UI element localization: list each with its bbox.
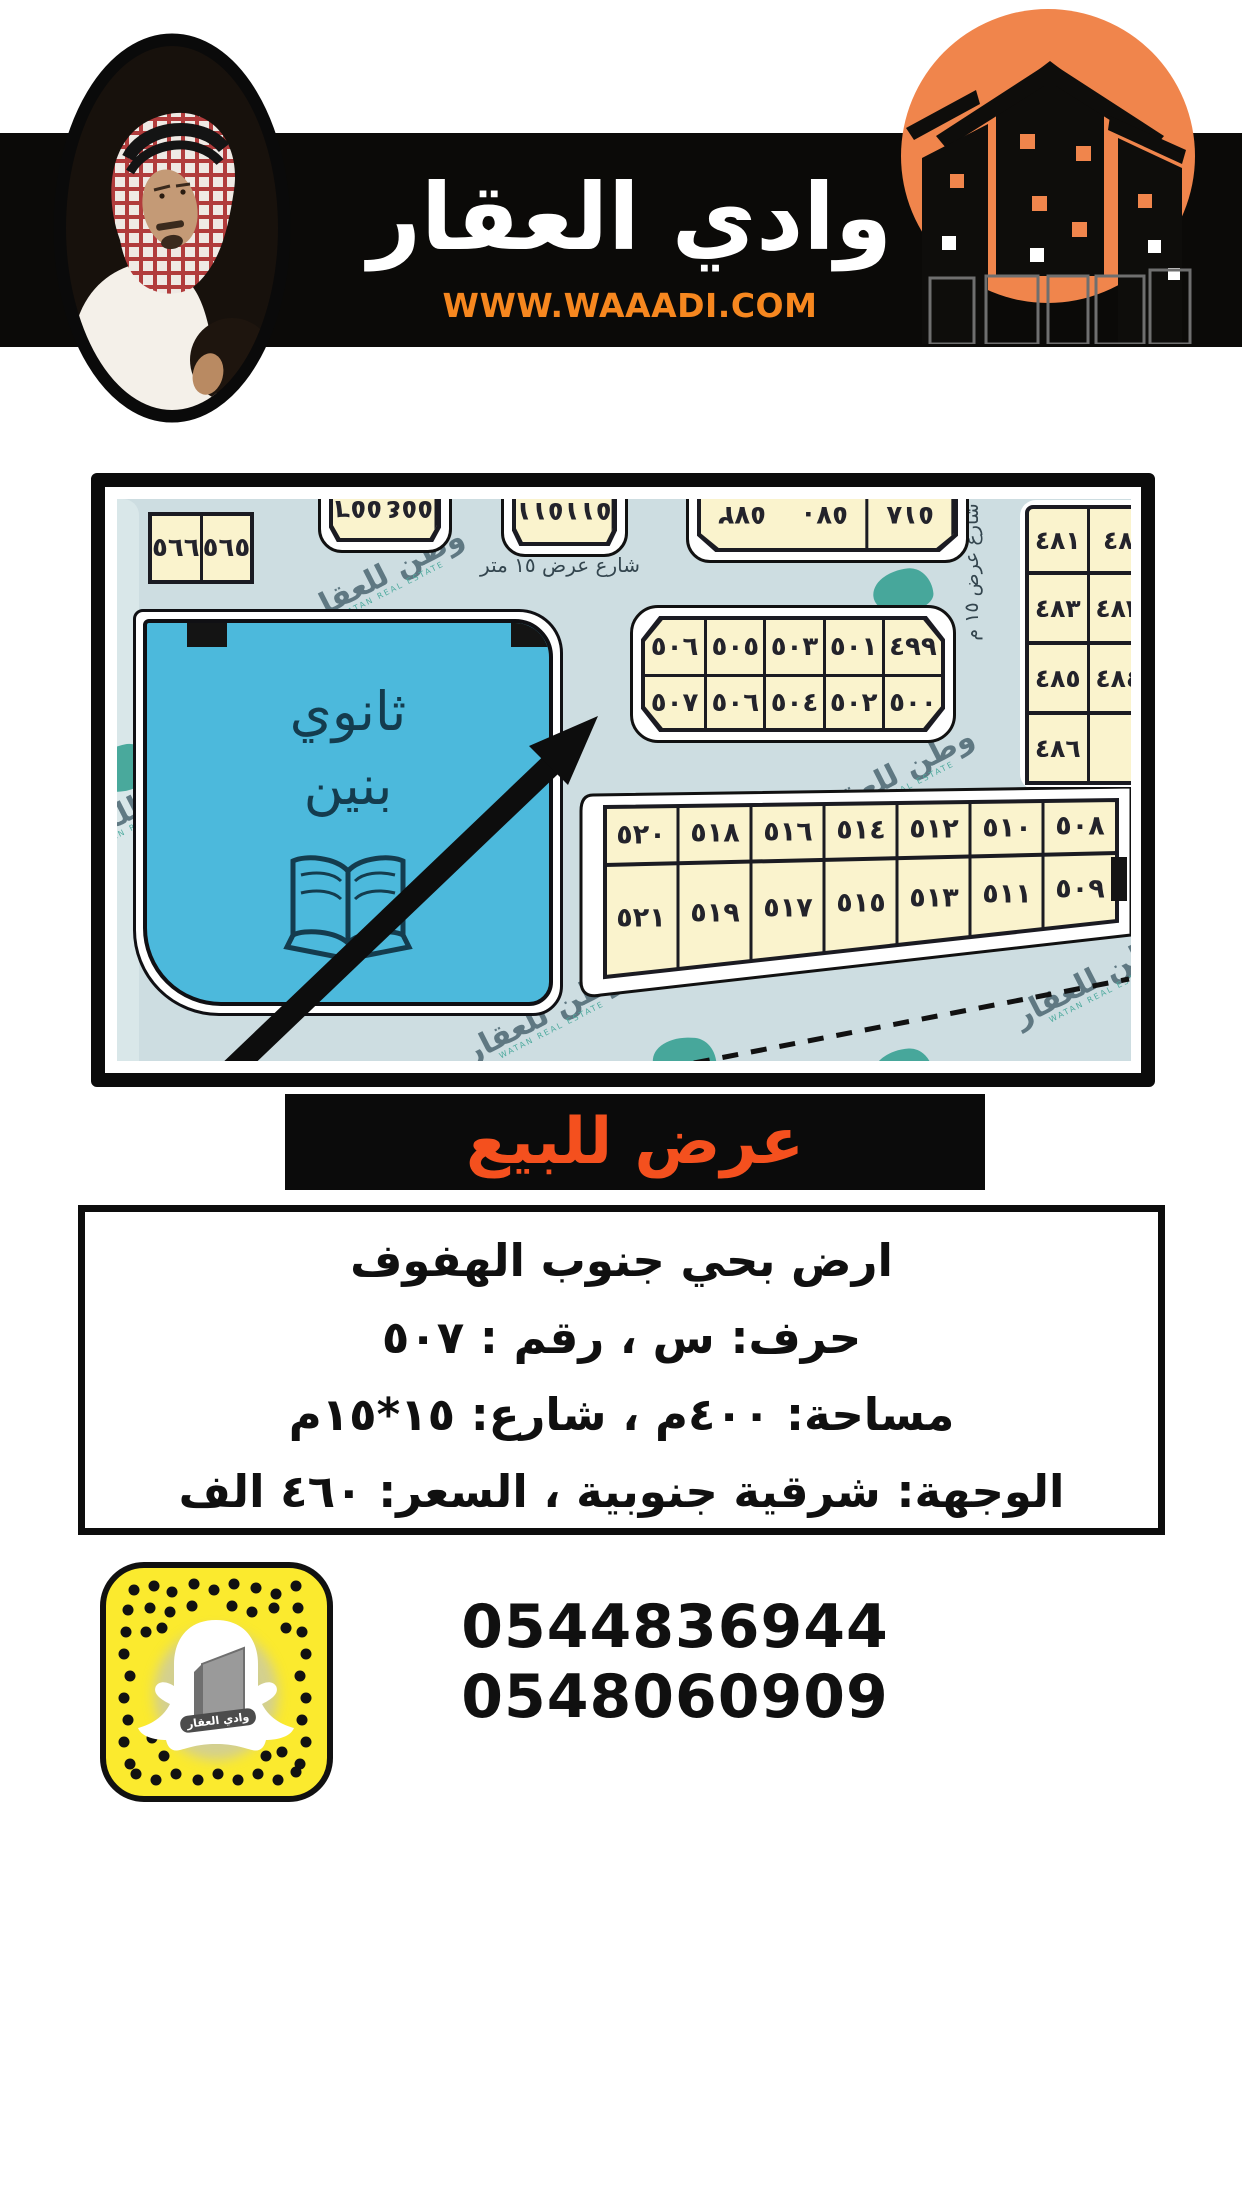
ksa-map-icon xyxy=(872,1047,935,1061)
flyer-page: وادي العقار WWW.WAAADI.COM xyxy=(0,0,1242,2208)
plot-cell: ٥١٢ xyxy=(909,814,959,845)
offer-details-box: ارض بحي جنوب الهفوف حرف: س ، رقم : ٥٠٧ م… xyxy=(78,1205,1165,1535)
plot-cell: ٥١٧ xyxy=(763,893,813,924)
plot-cell: ٥١١ xyxy=(564,499,615,542)
plot-cell: ٥٥٤ xyxy=(384,499,438,538)
plot-cell: ٤٨٣ xyxy=(1029,575,1087,641)
plot-cell: ٥١٣ xyxy=(909,883,959,914)
plot-cell: ٥١٦ xyxy=(763,817,812,848)
school-block: ثانوي بنين xyxy=(133,609,563,1016)
phone-number-1[interactable]: 0544836944 xyxy=(395,1592,955,1662)
plot-cell: ٥٧٢ xyxy=(701,499,783,548)
plot-cell: ٥٢١ xyxy=(616,903,665,934)
plot-block-566-565: ٥٦٦ ٥٦٥ xyxy=(148,512,254,584)
plot-cell: ٥١٨ xyxy=(690,818,740,849)
brand-title: وادي العقار xyxy=(340,158,920,278)
book-icon xyxy=(283,851,413,967)
school-gate xyxy=(187,621,227,647)
plot-cell: ٥١٤ xyxy=(836,815,885,846)
plot-block-top-b: ٥١١ ٥١١ xyxy=(501,499,628,557)
plot-cell: ٥١٩ xyxy=(690,898,739,929)
plot-cell: ٤٨١ xyxy=(1029,509,1087,571)
plot-cell: ٥١٠ xyxy=(982,813,1031,844)
plot-cell-506b: ٥٠٦ xyxy=(704,674,763,728)
plot-cell: ٥١٥ xyxy=(836,888,885,919)
plot-block-top-c: ٥٧٢ ٥٧٠ ٥١٨ xyxy=(686,499,969,563)
phone-numbers: 0544836944 0548060909 xyxy=(395,1592,955,1732)
plot-cell: ٥٥٦ xyxy=(333,499,384,538)
plot-cell: ٥٦٦ xyxy=(152,516,200,580)
plot-block-right-column: ٤٨١ ٤٨ ٤٨٣ ٤٨٢ ٤٨٥ ٤٨٤ ٤٨٦ xyxy=(1020,500,1131,790)
plot-cell: ٤٨ xyxy=(1087,509,1132,571)
plot-cell-501: ٥٠١ xyxy=(823,620,882,674)
school-label: ثانوي بنين xyxy=(147,675,549,823)
plot-cell: ٤٨٥ xyxy=(1029,645,1087,711)
plot-block-center: ٥٠٦ ٥٠٥ ٥٠٣ ٥٠١ ٤٩٩ ٥٠٧ ٥٠٦ ٥٠٤ ٥٠٢ ٥٠٠ xyxy=(630,605,956,743)
phone-number-2[interactable]: 0548060909 xyxy=(395,1662,955,1732)
plot-cell: ٤٨٤ xyxy=(1087,645,1132,711)
detail-line-area-street: مساحة: ٤٠٠م ، شارع: ١٥*١٥م xyxy=(85,1376,1158,1453)
plot-cell-504: ٥٠٤ xyxy=(763,674,822,728)
plot-cell-500: ٥٠٠ xyxy=(882,674,941,728)
plot-cell-499: ٤٩٩ xyxy=(882,620,941,674)
plot-cell: ٥٦٥ xyxy=(200,516,251,580)
plots-map: شارع عرض ١٥ متر شارع عرض ١٥ متر شارع عرض… xyxy=(117,499,1131,1061)
school-gate xyxy=(511,621,553,647)
offer-banner-text: عرض للبيع xyxy=(466,1105,804,1179)
plot-cell-506: ٥٠٦ xyxy=(645,620,704,674)
plot-cell: ٥١١ xyxy=(982,879,1031,910)
detail-line-location: ارض بحي جنوب الهفوف xyxy=(85,1222,1158,1299)
plot-block-top-a: ٥٥٦ ٥٥٤ xyxy=(318,499,452,553)
plot-cell: ٤٨٢ xyxy=(1087,575,1132,641)
plot-block-bottom: ٥٢٠ ٥١٨ ٥١٦ ٥١٤ ٥١٢ ٥١٠ ٥٠٨ ٥٢١ ٥١٩ ٥١٧ … xyxy=(565,787,1131,999)
plot-cell: ٥٠٩ xyxy=(1055,874,1104,905)
plot-cell-505: ٥٠٥ xyxy=(704,620,763,674)
plot-cell: ٥٠٨ xyxy=(1055,811,1105,842)
detail-line-plot-number: حرف: س ، رقم : ٥٠٧ xyxy=(85,1299,1158,1376)
map-frame: شارع عرض ١٥ متر شارع عرض ١٥ متر شارع عرض… xyxy=(91,473,1155,1087)
plot-cell: ٤٨٦ xyxy=(1029,715,1087,781)
plot-cell: ٥١٨ xyxy=(869,499,954,548)
brand-website-link[interactable]: WWW.WAAADI.COM xyxy=(340,286,920,325)
snapcode[interactable]: وادي العقار xyxy=(100,1562,333,1802)
offer-banner: عرض للبيع xyxy=(285,1094,985,1190)
plot-cell: ٥٢٠ xyxy=(616,820,665,851)
detail-line-facing-price: الوجهة: شرقية جنوبية ، السعر: ٤٦٠ الف xyxy=(85,1453,1158,1530)
plot-cell-502: ٥٠٢ xyxy=(823,674,882,728)
plot-cell: ٥٧٠ xyxy=(783,499,868,548)
ksa-map-icon xyxy=(651,1034,719,1061)
profile-photo xyxy=(50,28,294,428)
brand-logo-icon xyxy=(880,6,1214,344)
plot-cell: ٥١١ xyxy=(516,499,564,542)
plot-cell-503: ٥٠٣ xyxy=(763,620,822,674)
plot-cell-507-target: ٥٠٧ xyxy=(645,674,704,728)
plot-cell xyxy=(1087,715,1132,781)
